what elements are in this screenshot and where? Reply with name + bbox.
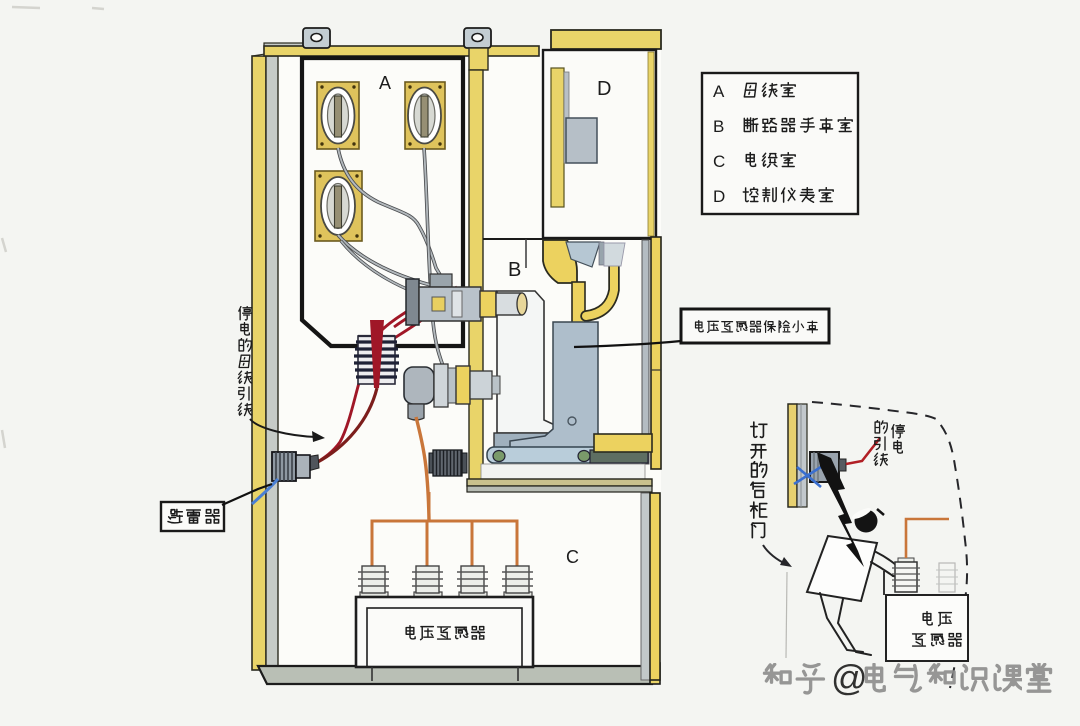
svg-text:C: C (566, 547, 579, 567)
svg-text:A: A (379, 73, 391, 93)
svg-text:D: D (597, 78, 611, 100)
svg-text:C: C (713, 152, 725, 171)
svg-text:B: B (713, 117, 724, 136)
svg-text:B: B (508, 259, 521, 281)
svg-text:A: A (713, 82, 725, 101)
svg-text:@: @ (831, 657, 868, 698)
svg-text:D: D (713, 187, 725, 206)
